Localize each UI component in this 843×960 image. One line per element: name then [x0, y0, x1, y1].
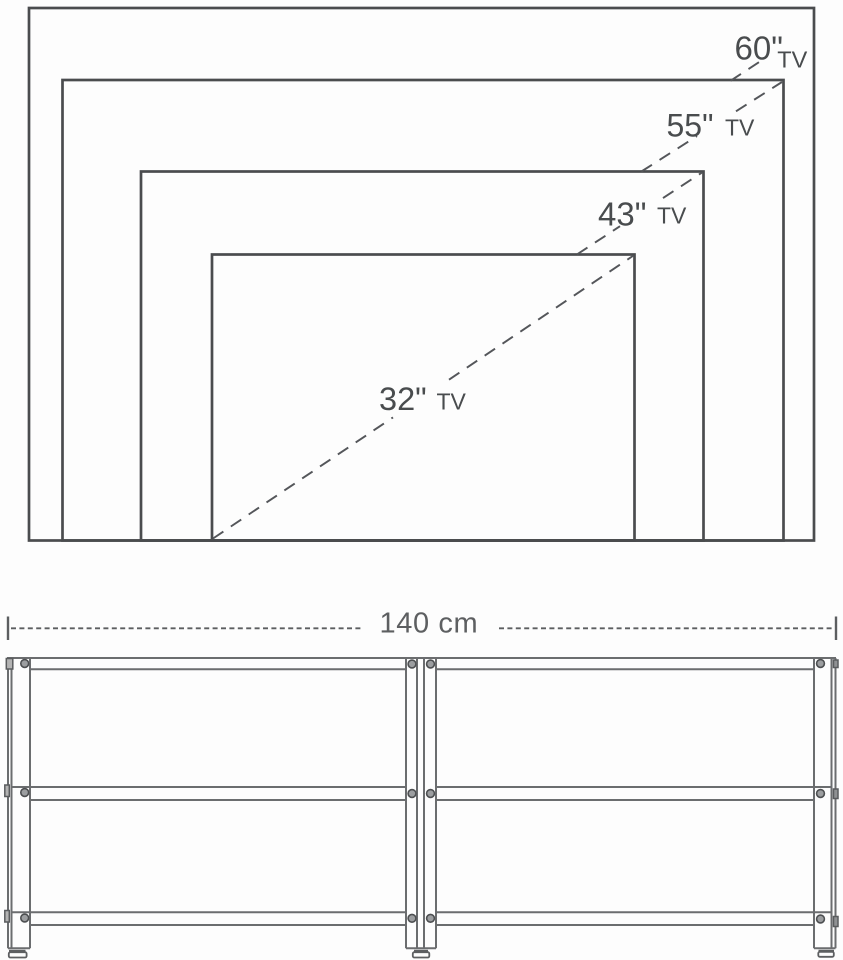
svg-text:TV: TV [725, 115, 755, 141]
svg-text:TV: TV [657, 202, 687, 228]
svg-text:43": 43" [598, 196, 646, 233]
svg-text:32": 32" [379, 381, 427, 417]
svg-text:55": 55" [667, 107, 714, 143]
svg-text:TV: TV [777, 46, 807, 72]
svg-text:140 cm: 140 cm [380, 608, 479, 640]
svg-text:60": 60" [735, 29, 783, 66]
svg-text:TV: TV [437, 388, 467, 414]
